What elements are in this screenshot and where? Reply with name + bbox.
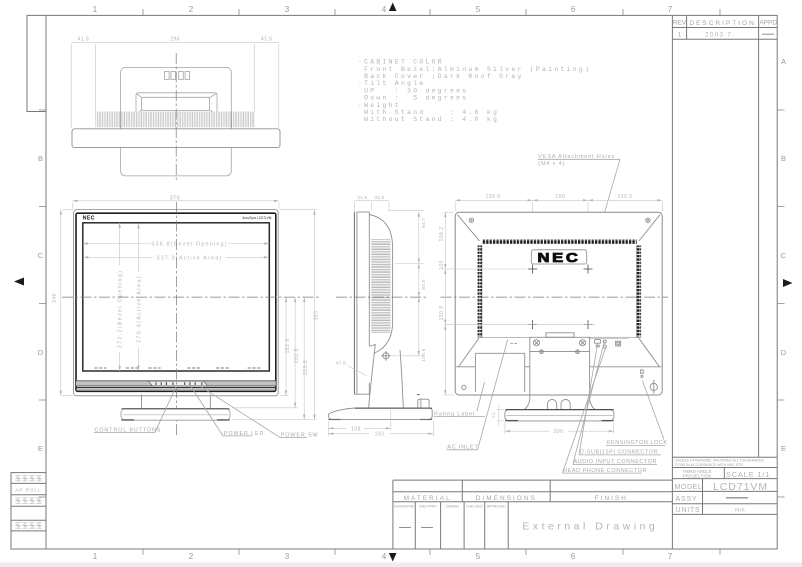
svg-text:2003.7.: 2003.7. xyxy=(705,32,735,39)
svg-text:NEC: NEC xyxy=(538,251,581,265)
svg-text:108: 108 xyxy=(351,426,361,432)
svg-text:2: 2 xyxy=(189,5,194,14)
svg-text:UNLESS OTHERWISE SPECIFIED ALL: UNLESS OTHERWISE SPECIFIED ALL TOLERANCE… xyxy=(675,459,765,463)
svg-text:41.5: 41.5 xyxy=(77,37,89,43)
svg-text:3: 3 xyxy=(285,5,290,14)
svg-text:1: 1 xyxy=(678,32,682,39)
svg-text:2: 2 xyxy=(189,552,194,561)
svg-text:UNITS: UNITS xyxy=(676,507,701,514)
svg-text:E: E xyxy=(38,444,43,453)
svg-text:FINISH: FINISH xyxy=(595,495,628,502)
svg-text:4: 4 xyxy=(382,5,387,14)
svg-text:mm: mm xyxy=(735,507,745,513)
svg-text:130.8: 130.8 xyxy=(439,305,445,320)
svg-text:223.8: 223.8 xyxy=(303,360,309,375)
svg-text:3: 3 xyxy=(285,552,290,561)
svg-text:340: 340 xyxy=(52,293,58,303)
svg-text:94.7: 94.7 xyxy=(421,218,426,228)
svg-text:6: 6 xyxy=(571,552,576,561)
svg-text:272.2(Bezel Opening): 272.2(Bezel Opening) xyxy=(118,270,124,348)
svg-text:379: 379 xyxy=(170,195,180,201)
svg-text:6: 6 xyxy=(571,5,576,14)
svg-text:100: 100 xyxy=(555,194,565,200)
svg-text:31.5: 31.5 xyxy=(357,195,367,200)
svg-text:CHECKED: CHECKED xyxy=(466,504,483,508)
svg-text:·CABINET COLOR: ·CABINET COLOR xyxy=(358,59,444,66)
svg-text:32.5: 32.5 xyxy=(374,195,384,200)
svg-text:·Weight: ·Weight xyxy=(358,102,401,109)
svg-text:193: 193 xyxy=(375,432,385,438)
svg-text:104.6: 104.6 xyxy=(421,348,426,361)
svg-text:MATERIAL: MATERIAL xyxy=(404,495,452,502)
svg-text:200: 200 xyxy=(554,429,564,435)
svg-text:D: D xyxy=(38,348,44,357)
svg-text:139.5: 139.5 xyxy=(485,194,500,200)
svg-text:PROJECTION: PROJECTION xyxy=(683,474,711,479)
svg-text:E: E xyxy=(781,444,786,453)
svg-text:5: 5 xyxy=(476,552,481,561)
svg-text:47.5: 47.5 xyxy=(336,361,346,366)
svg-text:AccuSync LCD71VM: AccuSync LCD71VM xyxy=(242,216,271,220)
svg-text:1: 1 xyxy=(93,552,98,561)
svg-text:80.5: 80.5 xyxy=(421,279,426,289)
svg-text:APPD: APPD xyxy=(759,20,777,27)
svg-text:MODEL: MODEL xyxy=(675,484,703,491)
svg-text:202.8: 202.8 xyxy=(294,348,300,363)
svg-text:182.8: 182.8 xyxy=(285,338,291,353)
svg-text:Without Stand : 4.0 kg: Without Stand : 4.0 kg xyxy=(358,116,499,123)
svg-text:4: 4 xyxy=(382,552,387,561)
svg-text:383: 383 xyxy=(313,311,319,321)
svg-text:D: D xyxy=(781,348,787,357)
svg-text:1: 1 xyxy=(93,5,98,14)
svg-text:ENGINEERING: ENGINEERING xyxy=(392,504,416,508)
svg-text:ENG APPD: ENG APPD xyxy=(419,504,437,508)
svg-text:A: A xyxy=(781,57,786,66)
svg-text:ASSY: ASSY xyxy=(676,496,698,503)
svg-text:270.4(Active Area): 270.4(Active Area) xyxy=(136,275,142,343)
svg-text:UP : 30 degrees: UP : 30 degrees xyxy=(358,87,468,94)
svg-text:B: B xyxy=(38,154,43,163)
svg-text:·Tilt Angle: ·Tilt Angle xyxy=(358,80,426,87)
svg-text:Down : 5 degrees: Down : 5 degrees xyxy=(358,95,468,102)
svg-text:TO BE IN ACCORDANCE WITH NEC S: TO BE IN ACCORDANCE WITH NEC STD xyxy=(675,463,744,467)
svg-text:APPROVED: APPROVED xyxy=(487,504,506,508)
svg-text:C: C xyxy=(38,251,44,260)
svg-text:5: 5 xyxy=(476,5,481,14)
svg-text:NEC: NEC xyxy=(83,216,95,222)
svg-text:With Stand : 4.6 kg: With Stand : 4.6 kg xyxy=(358,109,499,116)
svg-text:DRAWN: DRAWN xyxy=(446,504,459,508)
svg-text:Back Cover :Dark Roof Gray: Back Cover :Dark Roof Gray xyxy=(358,73,524,80)
svg-text:7: 7 xyxy=(668,5,673,14)
svg-text:External Drawing: External Drawing xyxy=(522,521,658,533)
svg-text:C: C xyxy=(781,251,787,260)
svg-text:LCD71VM: LCD71VM xyxy=(713,481,768,493)
svg-text:SCALE 1/1: SCALE 1/1 xyxy=(726,470,770,479)
svg-text:100: 100 xyxy=(439,260,445,270)
svg-text:7: 7 xyxy=(668,552,673,561)
svg-text:139.5: 139.5 xyxy=(617,194,632,200)
svg-text:B: B xyxy=(781,154,786,163)
svg-text:338.8(Bezel Opening): 338.8(Bezel Opening) xyxy=(151,242,227,248)
svg-text:Front Bezel:Alminum Silver (Pa: Front Bezel:Alminum Silver (Painting) xyxy=(358,66,591,73)
svg-text:REV: REV xyxy=(673,20,687,27)
svg-text:109.2: 109.2 xyxy=(439,226,445,241)
svg-text:41.5: 41.5 xyxy=(261,37,273,43)
svg-text:DESCRIPTION: DESCRIPTION xyxy=(689,20,755,27)
svg-text:(M4 x 4): (M4 x 4) xyxy=(538,161,565,167)
svg-text:21: 21 xyxy=(491,412,496,418)
svg-text:337.9(Active Area): 337.9(Active Area) xyxy=(157,255,223,261)
svg-text:DIMENSIONS: DIMENSIONS xyxy=(476,495,537,502)
svg-text:296: 296 xyxy=(170,37,180,43)
svg-text:AP ROLL: AP ROLL xyxy=(15,488,41,493)
